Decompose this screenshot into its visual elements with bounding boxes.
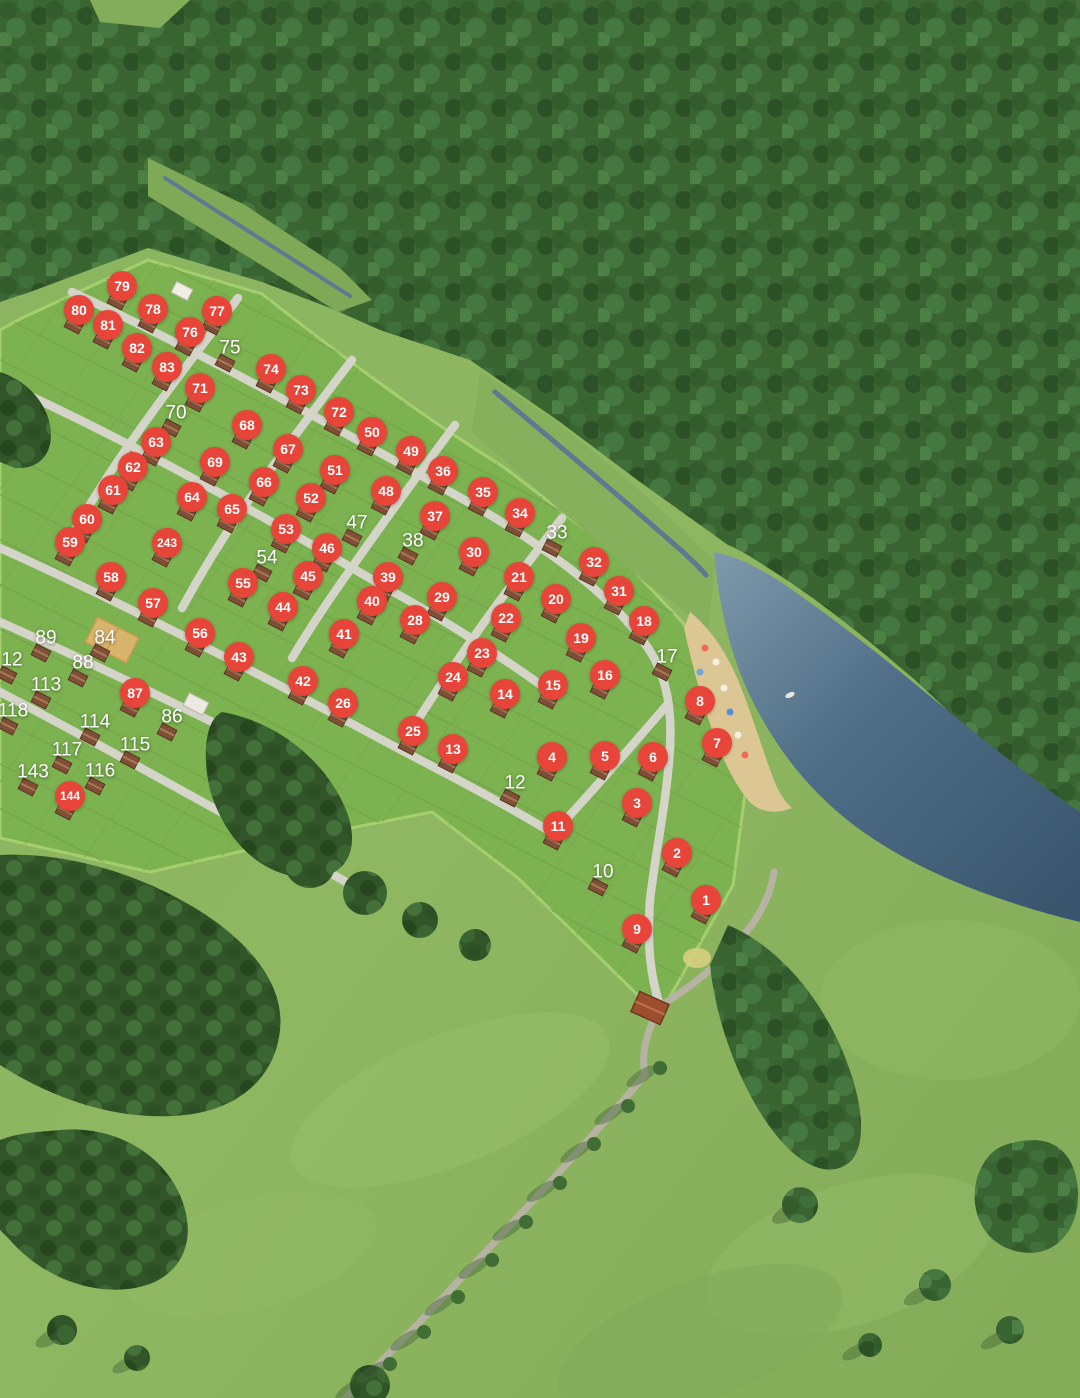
lot-label-10: 10	[592, 863, 613, 882]
lot-label-116: 116	[85, 762, 115, 781]
lot-pin-87[interactable]: 87	[120, 678, 150, 708]
lot-pin-78[interactable]: 78	[138, 294, 168, 324]
lot-pin-77[interactable]: 77	[202, 296, 232, 326]
lot-pin-56[interactable]: 56	[185, 618, 215, 648]
lot-pin-48[interactable]: 48	[371, 476, 401, 506]
lot-pin-16[interactable]: 16	[590, 660, 620, 690]
lot-pin-80[interactable]: 80	[64, 295, 94, 325]
lot-label-89: 89	[35, 629, 56, 648]
lot-pin-243[interactable]: 243	[152, 528, 182, 558]
lot-pin-34[interactable]: 34	[505, 498, 535, 528]
lot-pin-82[interactable]: 82	[122, 333, 152, 363]
lot-label-70: 70	[165, 404, 186, 423]
lot-label-117: 117	[52, 741, 82, 760]
lot-label-114: 114	[80, 713, 110, 732]
lot-pin-22[interactable]: 22	[491, 603, 521, 633]
lot-label-84: 84	[94, 629, 115, 648]
lot-pin-53[interactable]: 53	[271, 514, 301, 544]
lot-pin-15[interactable]: 15	[538, 670, 568, 700]
lot-pin-40[interactable]: 40	[357, 586, 387, 616]
lot-pin-79[interactable]: 79	[107, 271, 137, 301]
lot-label-86: 86	[161, 708, 182, 727]
lot-label-12: 12	[504, 774, 525, 793]
lot-pin-6[interactable]: 6	[638, 742, 668, 772]
lot-pin-32[interactable]: 32	[579, 547, 609, 577]
lot-pin-61[interactable]: 61	[98, 475, 128, 505]
lot-pin-4[interactable]: 4	[537, 742, 567, 772]
lot-pin-7[interactable]: 7	[702, 728, 732, 758]
lot-pin-69[interactable]: 69	[200, 447, 230, 477]
lot-pin-5[interactable]: 5	[590, 741, 620, 771]
lot-pin-19[interactable]: 19	[566, 623, 596, 653]
lot-pin-25[interactable]: 25	[398, 716, 428, 746]
lot-pin-42[interactable]: 42	[288, 666, 318, 696]
lot-pin-37[interactable]: 37	[420, 501, 450, 531]
lot-pin-72[interactable]: 72	[324, 397, 354, 427]
lot-pin-21[interactable]: 21	[504, 562, 534, 592]
lot-pin-31[interactable]: 31	[604, 576, 634, 606]
lot-pin-83[interactable]: 83	[152, 352, 182, 382]
lot-label-75: 75	[219, 339, 240, 358]
lot-pin-68[interactable]: 68	[232, 410, 262, 440]
lot-pin-66[interactable]: 66	[249, 467, 279, 497]
lot-pin-26[interactable]: 26	[328, 688, 358, 718]
lot-label-38: 38	[402, 532, 423, 551]
lot-pin-1[interactable]: 1	[691, 885, 721, 915]
lot-label-33: 33	[546, 524, 567, 543]
lot-pin-9[interactable]: 9	[622, 914, 652, 944]
lot-pin-36[interactable]: 36	[428, 456, 458, 486]
lot-pin-29[interactable]: 29	[427, 582, 457, 612]
lot-pin-13[interactable]: 13	[438, 734, 468, 764]
lot-label-47: 47	[346, 514, 367, 533]
lot-markers-layer: 7980787781768283747173726863675049696236…	[0, 0, 1080, 1398]
lot-pin-144[interactable]: 144	[55, 781, 85, 811]
lot-pin-76[interactable]: 76	[175, 317, 205, 347]
lot-pin-23[interactable]: 23	[467, 638, 497, 668]
lot-pin-3[interactable]: 3	[622, 788, 652, 818]
lot-pin-20[interactable]: 20	[541, 584, 571, 614]
lot-pin-63[interactable]: 63	[141, 427, 171, 457]
lot-pin-43[interactable]: 43	[224, 642, 254, 672]
lot-pin-28[interactable]: 28	[400, 605, 430, 635]
lot-pin-18[interactable]: 18	[629, 606, 659, 636]
lot-pin-71[interactable]: 71	[185, 373, 215, 403]
lot-pin-67[interactable]: 67	[273, 434, 303, 464]
lot-pin-45[interactable]: 45	[293, 561, 323, 591]
lot-pin-50[interactable]: 50	[357, 417, 387, 447]
lot-label-17: 17	[656, 648, 677, 667]
lot-pin-64[interactable]: 64	[177, 482, 207, 512]
lot-pin-11[interactable]: 11	[543, 811, 573, 841]
lot-pin-30[interactable]: 30	[459, 537, 489, 567]
lot-pin-49[interactable]: 49	[396, 436, 426, 466]
lot-label-113: 113	[31, 676, 61, 695]
lot-label-118: 118	[0, 702, 28, 721]
lot-pin-59[interactable]: 59	[55, 527, 85, 557]
lot-pin-51[interactable]: 51	[320, 455, 350, 485]
lot-pin-2[interactable]: 2	[662, 838, 692, 868]
lot-label-88: 88	[72, 654, 93, 673]
lot-label-12: 12	[1, 651, 22, 670]
lot-pin-74[interactable]: 74	[256, 354, 286, 384]
lot-pin-58[interactable]: 58	[96, 562, 126, 592]
lot-pin-52[interactable]: 52	[296, 483, 326, 513]
lot-label-54: 54	[256, 549, 277, 568]
lot-label-143: 143	[17, 763, 49, 782]
lot-pin-35[interactable]: 35	[468, 477, 498, 507]
lot-pin-55[interactable]: 55	[228, 568, 258, 598]
lot-pin-81[interactable]: 81	[93, 310, 123, 340]
lot-pin-14[interactable]: 14	[490, 679, 520, 709]
lot-pin-24[interactable]: 24	[438, 662, 468, 692]
lot-pin-65[interactable]: 65	[217, 494, 247, 524]
lot-pin-44[interactable]: 44	[268, 592, 298, 622]
lot-pin-57[interactable]: 57	[138, 588, 168, 618]
lot-pin-46[interactable]: 46	[312, 533, 342, 563]
lot-pin-73[interactable]: 73	[286, 375, 316, 405]
masterplan-map: 7980787781768283747173726863675049696236…	[0, 0, 1080, 1398]
lot-pin-8[interactable]: 8	[685, 686, 715, 716]
lot-label-115: 115	[120, 736, 150, 755]
lot-pin-41[interactable]: 41	[329, 619, 359, 649]
